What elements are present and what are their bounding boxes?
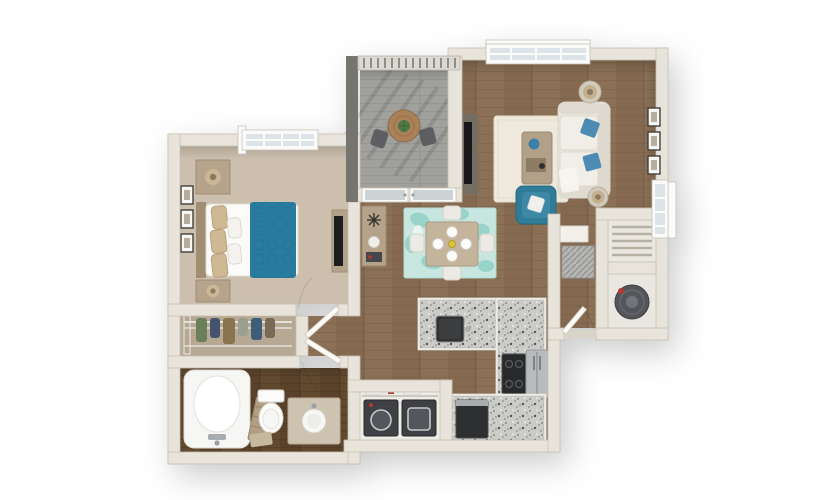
floorplan-render xyxy=(0,0,825,500)
sofa xyxy=(558,102,610,198)
utility-mid-wall xyxy=(608,262,656,274)
living-window-top[interactable] xyxy=(486,40,590,64)
tan-pillow xyxy=(210,229,227,253)
blue-bowl-decor xyxy=(529,139,540,150)
heater-valve xyxy=(618,288,624,294)
hvac-unit xyxy=(562,246,594,278)
tan-pillow xyxy=(211,253,228,277)
washer-door xyxy=(371,410,391,430)
tub-faucet xyxy=(208,434,226,440)
white-pillow xyxy=(227,243,242,264)
teal-duvet-pattern xyxy=(250,202,296,278)
tray-red-item xyxy=(368,255,372,259)
sofa-arm xyxy=(558,102,600,114)
dryer-door xyxy=(408,408,430,430)
entry-bottom-wall-seg xyxy=(548,328,564,340)
floorplan-stage xyxy=(0,0,825,500)
range xyxy=(502,354,526,394)
living-window-right[interactable] xyxy=(652,180,676,238)
dining-chair xyxy=(410,234,424,252)
place-setting xyxy=(447,251,458,262)
bath-bottom-wall xyxy=(168,452,360,464)
toilet-tank xyxy=(258,390,284,402)
balcony-railing[interactable] xyxy=(358,56,460,70)
starburst-decor xyxy=(367,213,381,227)
entry-bottom-wall xyxy=(596,328,668,340)
bath-top-wall xyxy=(168,356,300,368)
dining-chair xyxy=(443,206,461,220)
dining-chair xyxy=(443,266,461,280)
refrigerator xyxy=(526,350,548,398)
sink-faucet xyxy=(312,404,317,409)
bistro-table xyxy=(388,110,420,142)
bedroom-bottom-wall xyxy=(168,304,296,316)
side-table-lamp-bottom xyxy=(588,187,608,207)
table-centerpiece xyxy=(449,241,456,248)
sink-faucet xyxy=(465,326,471,332)
tan-pillow xyxy=(211,205,228,229)
balcony-dark-wall xyxy=(346,56,358,202)
utility-west-wall xyxy=(596,208,608,340)
white-throw xyxy=(558,167,579,193)
hall-console xyxy=(362,206,386,266)
nightstand-top xyxy=(196,160,230,194)
dining-area xyxy=(404,206,496,280)
dishwasher xyxy=(456,400,488,438)
nightstand-bottom xyxy=(196,280,230,302)
dresser xyxy=(332,210,348,272)
bed xyxy=(196,202,298,278)
vanity xyxy=(288,398,340,444)
headboard xyxy=(196,202,206,278)
dining-chair xyxy=(480,234,494,252)
tub-drain-fixture xyxy=(214,440,219,445)
place-setting xyxy=(461,239,472,250)
bathtub xyxy=(184,370,250,448)
toilet xyxy=(258,390,284,433)
bath-top-wall-seg xyxy=(340,356,348,368)
place-setting xyxy=(447,227,458,238)
tv-screen xyxy=(334,216,343,266)
kitchen-bottom-wall xyxy=(344,440,560,452)
side-table-lamp-top xyxy=(579,81,601,103)
balcony-living-divider xyxy=(448,56,462,202)
hall-wood-floor xyxy=(308,316,362,356)
bedroom-window[interactable] xyxy=(238,126,318,154)
entry-shelf xyxy=(560,226,588,242)
white-pillow xyxy=(227,217,242,238)
sofa-back xyxy=(598,104,610,196)
water-heater xyxy=(615,285,649,319)
table-decor xyxy=(539,163,545,169)
living-wall-frames xyxy=(648,108,660,174)
vase-decor xyxy=(369,237,380,248)
laundry-top-wall xyxy=(348,380,452,392)
bedroom-wall-frames xyxy=(181,186,193,252)
place-setting xyxy=(433,239,444,250)
washer-knob xyxy=(369,403,373,407)
tv-screen xyxy=(464,122,472,184)
west-exterior-wall xyxy=(168,134,180,464)
